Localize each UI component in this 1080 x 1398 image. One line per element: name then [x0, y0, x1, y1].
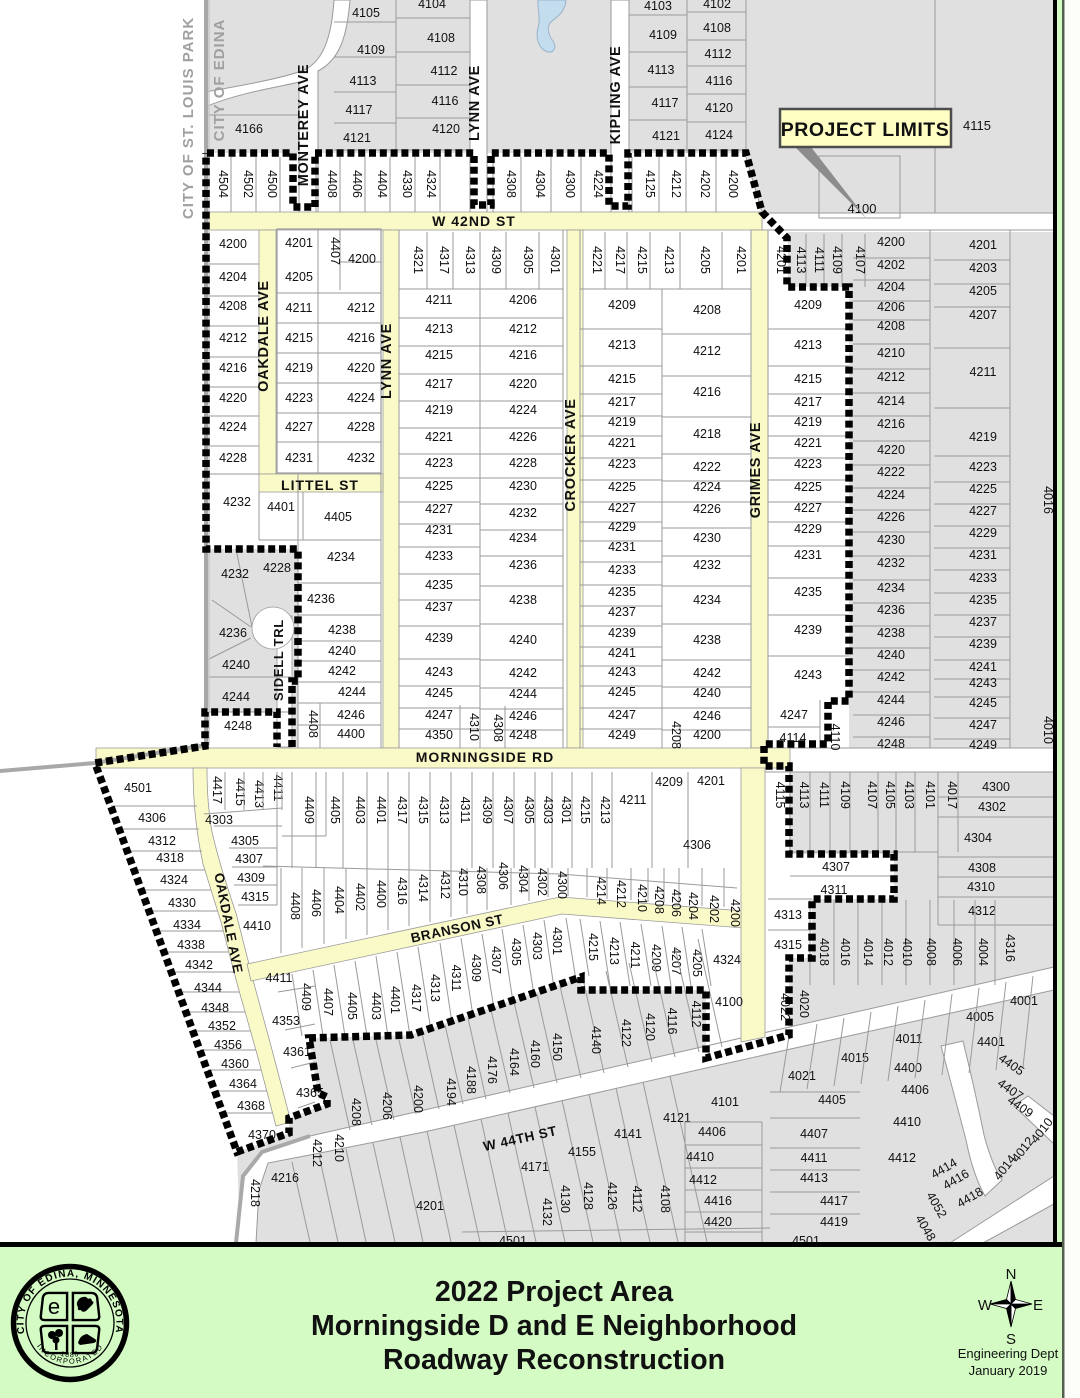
- svg-text:4324: 4324: [424, 170, 438, 198]
- svg-text:4300: 4300: [563, 170, 577, 198]
- svg-text:4419: 4419: [820, 1215, 848, 1229]
- svg-text:4213: 4213: [662, 246, 676, 274]
- svg-text:4238: 4238: [509, 593, 537, 607]
- svg-text:4309: 4309: [480, 796, 494, 824]
- svg-text:4312: 4312: [148, 834, 176, 848]
- svg-text:4215: 4215: [285, 331, 313, 345]
- svg-text:4210: 4210: [877, 346, 905, 360]
- svg-text:4200: 4200: [219, 237, 247, 251]
- svg-text:4117: 4117: [652, 96, 679, 110]
- svg-text:4200: 4200: [726, 170, 740, 198]
- svg-text:4243: 4243: [969, 676, 997, 690]
- svg-text:4413: 4413: [252, 780, 266, 808]
- svg-text:E: E: [1033, 1297, 1043, 1314]
- svg-text:4219: 4219: [794, 415, 822, 429]
- svg-text:4239: 4239: [794, 623, 822, 637]
- svg-text:4220: 4220: [219, 391, 247, 405]
- svg-text:4338: 4338: [177, 938, 205, 952]
- svg-text:4303: 4303: [541, 796, 555, 824]
- svg-text:4223: 4223: [608, 457, 636, 471]
- svg-text:4245: 4245: [608, 685, 636, 699]
- svg-text:4233: 4233: [608, 563, 636, 577]
- svg-text:4231: 4231: [285, 451, 313, 465]
- svg-text:4215: 4215: [635, 246, 649, 274]
- svg-text:4111: 4111: [817, 782, 831, 808]
- svg-text:4200: 4200: [728, 899, 742, 927]
- svg-text:4213: 4213: [425, 322, 453, 336]
- svg-text:4219: 4219: [969, 430, 997, 444]
- svg-text:4352: 4352: [208, 1019, 236, 1033]
- svg-text:4206: 4206: [877, 300, 905, 314]
- svg-text:4410: 4410: [893, 1115, 921, 1129]
- svg-text:OAKDALE AVE: OAKDALE AVE: [256, 280, 272, 392]
- svg-text:4228: 4228: [219, 451, 247, 465]
- svg-text:4243: 4243: [425, 665, 453, 679]
- svg-text:4303: 4303: [530, 932, 544, 960]
- svg-text:4207: 4207: [969, 308, 997, 322]
- svg-text:4205: 4205: [690, 949, 704, 977]
- svg-text:4239: 4239: [969, 637, 997, 651]
- svg-text:4356: 4356: [214, 1038, 242, 1052]
- svg-text:W: W: [978, 1297, 993, 1314]
- svg-text:4200: 4200: [693, 728, 721, 742]
- svg-text:4239: 4239: [608, 626, 636, 640]
- svg-text:January 2019: January 2019: [969, 1363, 1048, 1378]
- svg-text:4407: 4407: [800, 1127, 828, 1141]
- svg-text:4309: 4309: [489, 246, 503, 274]
- svg-text:4305: 4305: [231, 834, 259, 848]
- svg-text:4233: 4233: [969, 571, 997, 585]
- svg-text:4113: 4113: [794, 247, 808, 274]
- svg-text:4211: 4211: [620, 793, 647, 807]
- svg-text:4233: 4233: [425, 549, 453, 563]
- svg-text:4244: 4244: [222, 690, 250, 704]
- svg-text:4109: 4109: [649, 28, 677, 42]
- svg-text:4016: 4016: [838, 938, 852, 966]
- svg-text:4400: 4400: [894, 1061, 922, 1075]
- svg-text:4218: 4218: [248, 1179, 262, 1207]
- svg-text:4234: 4234: [693, 593, 721, 607]
- svg-text:4212: 4212: [219, 331, 247, 345]
- svg-text:4016: 4016: [1041, 486, 1055, 514]
- svg-text:4406: 4406: [698, 1125, 726, 1139]
- svg-text:4248: 4248: [509, 728, 537, 742]
- svg-text:4350: 4350: [425, 728, 453, 742]
- svg-text:4403: 4403: [369, 992, 383, 1020]
- svg-text:4360: 4360: [221, 1057, 249, 1071]
- svg-text:4232: 4232: [693, 558, 721, 572]
- svg-text:4315: 4315: [241, 890, 269, 904]
- svg-text:4201: 4201: [734, 246, 748, 274]
- svg-text:4221: 4221: [608, 436, 636, 450]
- svg-text:4411: 4411: [266, 971, 293, 985]
- svg-text:4249: 4249: [608, 728, 636, 742]
- svg-text:LYNN AVE: LYNN AVE: [467, 65, 483, 141]
- svg-text:4108: 4108: [658, 1185, 672, 1213]
- svg-text:4406: 4406: [901, 1083, 929, 1097]
- svg-text:4229: 4229: [608, 520, 636, 534]
- svg-text:4120: 4120: [705, 101, 733, 115]
- svg-text:4324: 4324: [160, 873, 188, 887]
- svg-text:4209: 4209: [649, 944, 663, 972]
- svg-text:4216: 4216: [693, 385, 721, 399]
- svg-text:4205: 4205: [285, 270, 313, 284]
- svg-text:4311: 4311: [821, 883, 848, 897]
- svg-text:4212: 4212: [347, 301, 375, 315]
- svg-text:4113: 4113: [648, 63, 675, 77]
- svg-text:4225: 4225: [608, 480, 636, 494]
- svg-text:4221: 4221: [590, 246, 604, 274]
- svg-text:4217: 4217: [794, 395, 822, 409]
- svg-text:4201: 4201: [697, 774, 725, 788]
- svg-text:4200: 4200: [877, 235, 905, 249]
- svg-text:4231: 4231: [969, 548, 997, 562]
- svg-text:4410: 4410: [686, 1150, 714, 1164]
- svg-text:4202: 4202: [698, 170, 712, 198]
- svg-text:4212: 4212: [614, 880, 628, 908]
- svg-text:4105: 4105: [883, 781, 897, 809]
- svg-text:4224: 4224: [219, 420, 247, 434]
- svg-text:4241: 4241: [608, 646, 636, 660]
- svg-text:4316: 4316: [1003, 934, 1017, 962]
- svg-text:4004: 4004: [976, 938, 990, 966]
- svg-text:4245: 4245: [969, 696, 997, 710]
- svg-text:N: N: [1006, 1266, 1017, 1283]
- svg-text:4222: 4222: [877, 465, 905, 479]
- svg-text:4246: 4246: [337, 708, 365, 722]
- svg-text:4120: 4120: [432, 122, 460, 136]
- svg-text:4406: 4406: [350, 170, 364, 198]
- svg-text:4210: 4210: [635, 884, 649, 912]
- svg-text:4220: 4220: [347, 361, 375, 375]
- svg-text:4211: 4211: [286, 301, 313, 315]
- svg-text:4406: 4406: [309, 889, 323, 917]
- svg-text:4324: 4324: [713, 953, 741, 967]
- svg-text:4305: 4305: [521, 246, 535, 274]
- svg-text:4120: 4120: [643, 1013, 657, 1041]
- svg-text:4219: 4219: [608, 415, 636, 429]
- svg-text:4205: 4205: [698, 246, 712, 274]
- svg-text:4401: 4401: [977, 1035, 1005, 1049]
- svg-text:4202: 4202: [877, 258, 905, 272]
- svg-text:4315: 4315: [774, 938, 802, 952]
- svg-text:4317: 4317: [409, 984, 423, 1012]
- svg-text:4171: 4171: [521, 1160, 549, 1174]
- svg-text:4218: 4218: [693, 427, 721, 441]
- svg-text:4215: 4215: [586, 933, 600, 961]
- svg-text:4231: 4231: [794, 548, 822, 562]
- svg-text:4112: 4112: [431, 64, 458, 78]
- svg-text:4211: 4211: [628, 942, 642, 969]
- svg-text:4111: 4111: [812, 247, 826, 273]
- svg-text:4202: 4202: [707, 895, 721, 923]
- svg-text:4012: 4012: [881, 938, 895, 966]
- svg-text:4102: 4102: [703, 0, 731, 11]
- svg-text:4305: 4305: [509, 938, 523, 966]
- svg-text:4232: 4232: [347, 451, 375, 465]
- svg-text:4309: 4309: [237, 871, 265, 885]
- svg-text:4109: 4109: [838, 781, 852, 809]
- svg-text:4400: 4400: [374, 880, 388, 908]
- svg-text:4235: 4235: [969, 593, 997, 607]
- svg-text:4410: 4410: [243, 919, 271, 933]
- svg-text:4109: 4109: [357, 43, 385, 57]
- svg-text:4101: 4101: [923, 781, 937, 809]
- svg-text:4401: 4401: [267, 500, 295, 514]
- svg-text:4312: 4312: [968, 904, 996, 918]
- svg-text:4317: 4317: [437, 246, 451, 274]
- svg-text:4228: 4228: [509, 456, 537, 470]
- svg-text:4229: 4229: [794, 522, 822, 536]
- svg-text:4200: 4200: [348, 252, 376, 266]
- svg-text:4306: 4306: [138, 811, 166, 825]
- svg-text:4213: 4213: [607, 937, 621, 965]
- svg-text:4318: 4318: [156, 851, 184, 865]
- svg-text:4204: 4204: [877, 280, 905, 294]
- svg-text:4321: 4321: [411, 246, 425, 274]
- svg-text:4228: 4228: [347, 420, 375, 434]
- svg-text:4237: 4237: [969, 615, 997, 629]
- svg-text:4232: 4232: [509, 506, 537, 520]
- svg-text:4006: 4006: [950, 938, 964, 966]
- svg-text:4130: 4130: [558, 1185, 572, 1213]
- svg-text:4502: 4502: [241, 170, 255, 198]
- svg-text:4235: 4235: [794, 585, 822, 599]
- svg-text:4227: 4227: [285, 420, 313, 434]
- svg-text:4344: 4344: [194, 981, 222, 995]
- svg-text:4230: 4230: [509, 479, 537, 493]
- svg-text:4304: 4304: [533, 170, 547, 198]
- svg-text:4215: 4215: [425, 348, 453, 362]
- svg-text:4243: 4243: [794, 668, 822, 682]
- svg-text:4126: 4126: [605, 1182, 619, 1210]
- svg-text:4234: 4234: [509, 531, 537, 545]
- svg-text:4313: 4313: [428, 974, 442, 1002]
- svg-text:4225: 4225: [794, 480, 822, 494]
- svg-text:4301: 4301: [548, 246, 562, 274]
- svg-text:4246: 4246: [509, 709, 537, 723]
- svg-text:4017: 4017: [945, 781, 959, 809]
- svg-text:4223: 4223: [425, 456, 453, 470]
- svg-text:4213: 4213: [608, 338, 636, 352]
- svg-text:4112: 4112: [689, 1001, 703, 1028]
- svg-text:4223: 4223: [969, 460, 997, 474]
- svg-text:4311: 4311: [449, 965, 463, 992]
- svg-text:4100: 4100: [715, 995, 743, 1009]
- svg-text:4235: 4235: [608, 585, 636, 599]
- svg-text:4227: 4227: [425, 502, 453, 516]
- svg-text:4115: 4115: [773, 782, 787, 809]
- svg-text:4307: 4307: [235, 852, 263, 866]
- svg-text:4303: 4303: [205, 813, 233, 827]
- svg-text:4411: 4411: [801, 1151, 828, 1165]
- svg-text:GRIMES AVE: GRIMES AVE: [748, 422, 764, 518]
- svg-text:4103: 4103: [644, 0, 672, 13]
- svg-text:4412: 4412: [689, 1173, 717, 1187]
- svg-text:S: S: [1006, 1331, 1016, 1348]
- svg-text:PROJECT LIMITS: PROJECT LIMITS: [781, 119, 949, 141]
- svg-text:4247: 4247: [780, 708, 808, 722]
- svg-text:4211: 4211: [426, 293, 453, 307]
- svg-text:4122: 4122: [619, 1019, 633, 1047]
- svg-text:4215: 4215: [794, 372, 822, 386]
- svg-text:4216: 4216: [877, 417, 905, 431]
- svg-text:4242: 4242: [509, 666, 537, 680]
- svg-text:4112: 4112: [630, 1186, 644, 1213]
- svg-text:LYNN AVE: LYNN AVE: [379, 323, 395, 399]
- svg-text:CITY OF ST. LOUIS PARK: CITY OF ST. LOUIS PARK: [180, 17, 197, 219]
- svg-text:W 42ND ST: W 42ND ST: [432, 213, 516, 229]
- svg-text:4310: 4310: [967, 880, 995, 894]
- svg-text:4221: 4221: [425, 430, 453, 444]
- svg-text:2022 Project Area: 2022 Project Area: [435, 1276, 674, 1308]
- svg-text:4405: 4405: [818, 1093, 846, 1107]
- svg-text:4407: 4407: [328, 237, 342, 265]
- svg-text:4224: 4224: [591, 170, 605, 198]
- svg-text:4210: 4210: [332, 1134, 346, 1162]
- svg-text:4501: 4501: [124, 781, 152, 795]
- svg-text:4225: 4225: [969, 482, 997, 496]
- svg-text:4240: 4240: [222, 658, 250, 672]
- svg-text:4204: 4204: [686, 892, 700, 920]
- svg-text:4208: 4208: [693, 303, 721, 317]
- svg-text:4224: 4224: [509, 403, 537, 417]
- svg-text:4411: 4411: [271, 775, 285, 802]
- svg-text:4223: 4223: [285, 391, 313, 405]
- svg-text:4417: 4417: [820, 1194, 848, 1208]
- svg-text:LITTEL ST: LITTEL ST: [281, 477, 359, 493]
- svg-text:4229: 4229: [969, 526, 997, 540]
- svg-text:4219: 4219: [285, 361, 313, 375]
- svg-text:4112: 4112: [705, 47, 732, 61]
- svg-text:4231: 4231: [425, 523, 453, 537]
- svg-text:4242: 4242: [877, 670, 905, 684]
- svg-text:4010: 4010: [900, 938, 914, 966]
- svg-text:4238: 4238: [877, 626, 905, 640]
- svg-text:e: e: [48, 1294, 60, 1319]
- svg-text:4405: 4405: [328, 796, 342, 824]
- svg-text:4001: 4001: [1010, 994, 1038, 1008]
- svg-text:4402: 4402: [353, 883, 367, 911]
- svg-text:4212: 4212: [509, 322, 537, 336]
- svg-text:4227: 4227: [608, 501, 636, 515]
- svg-text:4317: 4317: [395, 796, 409, 824]
- svg-text:4415: 4415: [233, 778, 247, 806]
- svg-text:4242: 4242: [328, 664, 356, 678]
- svg-text:4204: 4204: [219, 270, 247, 284]
- svg-text:4212: 4212: [877, 370, 905, 384]
- svg-text:4226: 4226: [509, 430, 537, 444]
- svg-text:4242: 4242: [693, 666, 721, 680]
- svg-text:4209: 4209: [608, 298, 636, 312]
- svg-text:4208: 4208: [652, 886, 666, 914]
- svg-text:4408: 4408: [325, 170, 339, 198]
- svg-text:4244: 4244: [877, 693, 905, 707]
- svg-text:4240: 4240: [877, 648, 905, 662]
- svg-text:4124: 4124: [705, 128, 733, 142]
- svg-text:4234: 4234: [877, 581, 905, 595]
- svg-text:4305: 4305: [522, 796, 536, 824]
- svg-text:4206: 4206: [509, 293, 537, 307]
- svg-text:4220: 4220: [509, 377, 537, 391]
- svg-text:4241: 4241: [969, 660, 997, 674]
- svg-text:4307: 4307: [489, 946, 503, 974]
- svg-text:4342: 4342: [185, 958, 213, 972]
- svg-text:4188: 4188: [464, 1066, 478, 1094]
- svg-text:4160: 4160: [528, 1040, 542, 1068]
- svg-text:4409: 4409: [302, 796, 316, 824]
- svg-text:4107: 4107: [853, 246, 867, 274]
- svg-text:4225: 4225: [425, 479, 453, 493]
- svg-text:4408: 4408: [288, 892, 302, 920]
- svg-text:4308: 4308: [491, 714, 505, 742]
- svg-text:4246: 4246: [693, 709, 721, 723]
- svg-text:4316: 4316: [395, 877, 409, 905]
- svg-text:4217: 4217: [613, 246, 627, 274]
- svg-text:4236: 4236: [219, 626, 247, 640]
- svg-text:4312: 4312: [438, 871, 452, 899]
- svg-text:4364: 4364: [229, 1077, 257, 1091]
- svg-text:4244: 4244: [509, 687, 537, 701]
- svg-text:4301: 4301: [550, 927, 564, 955]
- svg-text:4504: 4504: [216, 170, 230, 198]
- svg-text:4212: 4212: [669, 170, 683, 198]
- svg-text:4408: 4408: [306, 710, 320, 738]
- svg-text:4308: 4308: [474, 866, 488, 894]
- svg-text:4150: 4150: [550, 1033, 564, 1061]
- svg-text:4164: 4164: [507, 1048, 521, 1076]
- svg-text:4224: 4224: [347, 391, 375, 405]
- svg-text:Morningside D and E Neighborho: Morningside D and E Neighborhood: [311, 1310, 797, 1342]
- svg-text:4306: 4306: [683, 838, 711, 852]
- svg-text:4313: 4313: [774, 908, 802, 922]
- svg-text:4209: 4209: [794, 298, 822, 312]
- svg-text:4348: 4348: [201, 1001, 229, 1015]
- svg-text:4227: 4227: [969, 504, 997, 518]
- svg-text:4239: 4239: [425, 631, 453, 645]
- svg-text:4244: 4244: [338, 685, 366, 699]
- svg-text:4247: 4247: [425, 708, 453, 722]
- svg-text:4313: 4313: [437, 796, 451, 824]
- svg-text:4401: 4401: [388, 986, 402, 1014]
- svg-text:4232: 4232: [877, 556, 905, 570]
- svg-text:4243: 4243: [608, 665, 636, 679]
- svg-text:4308: 4308: [968, 861, 996, 875]
- svg-text:4307: 4307: [822, 860, 850, 874]
- svg-text:4200: 4200: [411, 1085, 425, 1113]
- svg-text:4107: 4107: [865, 781, 879, 809]
- svg-text:4217: 4217: [608, 395, 636, 409]
- svg-text:4201: 4201: [969, 238, 997, 252]
- svg-text:4208: 4208: [877, 319, 905, 333]
- svg-text:4330: 4330: [168, 896, 196, 910]
- svg-text:CITY OF EDINA: CITY OF EDINA: [211, 19, 228, 142]
- svg-text:4216: 4216: [347, 331, 375, 345]
- svg-text:4300: 4300: [982, 780, 1010, 794]
- svg-text:4315: 4315: [416, 796, 430, 824]
- svg-text:4113: 4113: [350, 74, 377, 88]
- svg-text:4216: 4216: [219, 361, 247, 375]
- svg-text:4014: 4014: [861, 938, 875, 966]
- svg-text:4224: 4224: [877, 488, 905, 502]
- svg-text:4116: 4116: [432, 94, 459, 108]
- svg-text:4405: 4405: [324, 510, 352, 524]
- svg-text:4166: 4166: [235, 122, 263, 136]
- svg-text:4101: 4101: [711, 1095, 739, 1109]
- svg-text:4208: 4208: [219, 299, 247, 313]
- svg-text:4213: 4213: [598, 796, 612, 824]
- svg-text:4128: 4128: [581, 1182, 595, 1210]
